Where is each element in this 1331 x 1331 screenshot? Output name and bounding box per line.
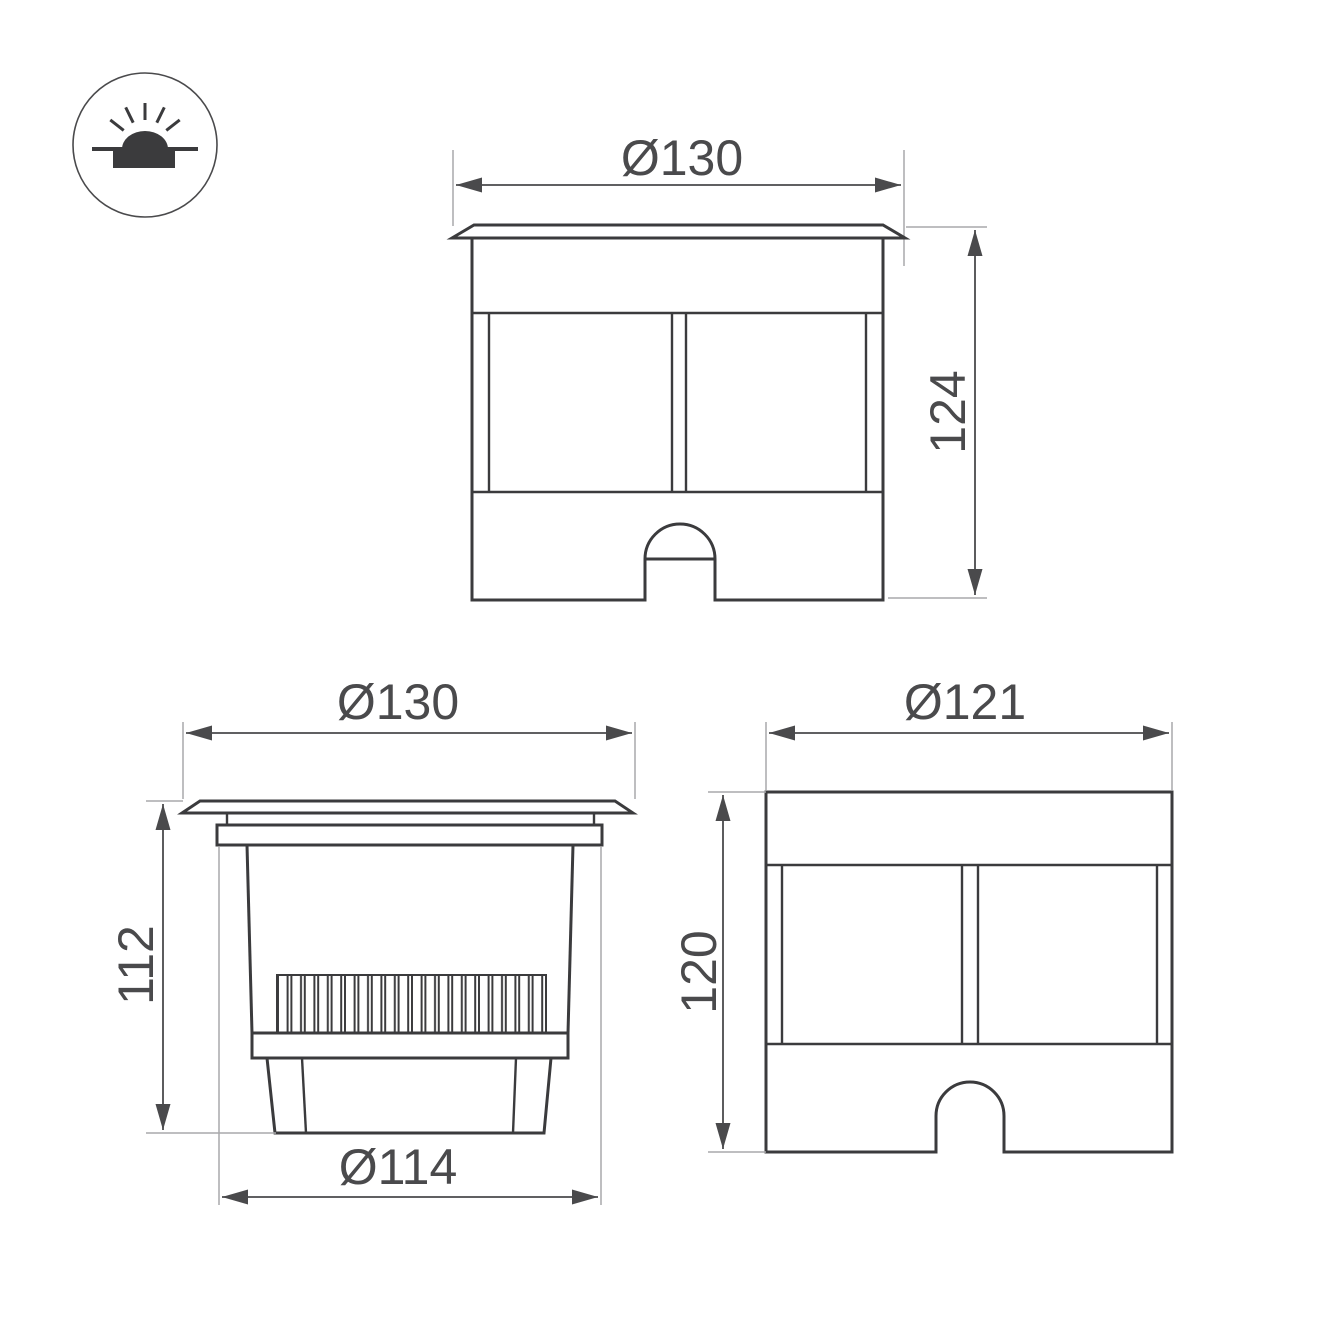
housing-outline [766,792,1172,1152]
lamp-housing [113,151,175,168]
flange [182,801,633,813]
dimension-label-side-height: 112 [108,925,164,1005]
ground-recessed-mount-icon [73,73,217,217]
light-rays-icon [110,103,179,130]
housing-front-view: Ø121 120 [671,674,1172,1152]
dimension-label-side-width: Ø130 [337,674,459,730]
lamp-dome [122,131,168,149]
step-ring [227,813,594,825]
glass-side-line [568,845,573,1033]
front-view: Ø130 124 [452,130,987,600]
dimension-label-housing-height: 120 [671,930,727,1013]
technical-drawing: Ø130 124 Ø130 [0,0,1331,1331]
flange [452,225,905,238]
dimension-label-side-bottom-width: Ø114 [339,1139,458,1195]
driver-plate [252,1033,568,1058]
heatsink-fins [277,975,546,1033]
base-inner-line [302,1058,306,1133]
dimension-label-front-width: Ø130 [621,130,743,186]
collar-ring [217,825,602,845]
base-inner-line [513,1058,516,1133]
base-housing [267,1058,551,1133]
housing-outline [472,238,883,600]
glass-side-line [247,845,252,1033]
dimension-label-front-height: 124 [920,370,976,453]
side-section-view: Ø130 112 Ø114 [108,674,635,1205]
dimension-label-housing-width: Ø121 [904,674,1026,730]
ground-line [92,147,198,151]
drawing-page: Ø130 124 Ø130 [0,0,1331,1331]
